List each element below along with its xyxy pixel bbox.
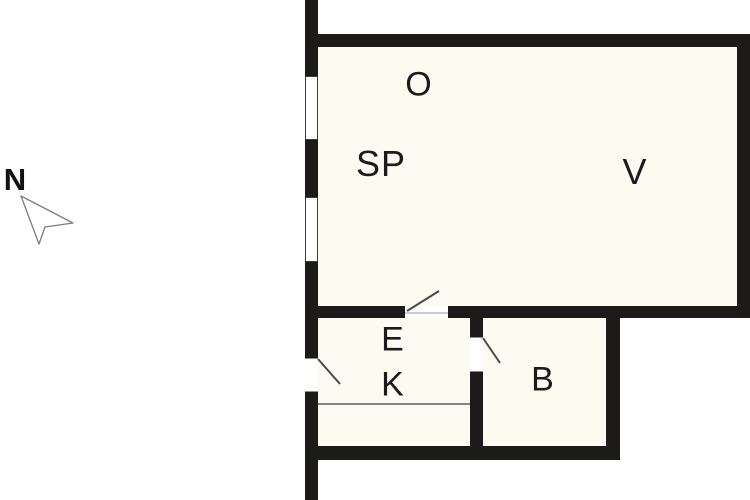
room-label-e: E <box>381 321 405 360</box>
living-room-door-opening <box>405 306 448 318</box>
room-label-b: B <box>531 361 555 400</box>
floor-plan: N O SP V E K B <box>0 0 750 500</box>
wall-right-exterior <box>737 34 750 318</box>
compass-north-label: N <box>4 162 26 198</box>
room-label-sp: SP <box>356 143 406 185</box>
room-label-o: O <box>405 66 432 105</box>
entry-door-opening <box>305 358 318 392</box>
room-label-v: V <box>622 151 647 193</box>
window-symbol-lower <box>305 197 318 262</box>
wall-bathroom-right <box>606 306 620 460</box>
wall-top-exterior <box>305 34 750 47</box>
wall-middle-horizontal <box>305 306 750 318</box>
north-arrow-icon <box>21 196 73 244</box>
room-label-k: K <box>381 366 405 405</box>
window-symbol-upper <box>305 76 318 140</box>
bathroom-door-opening <box>470 337 483 372</box>
wall-bottom-exterior <box>305 446 620 460</box>
